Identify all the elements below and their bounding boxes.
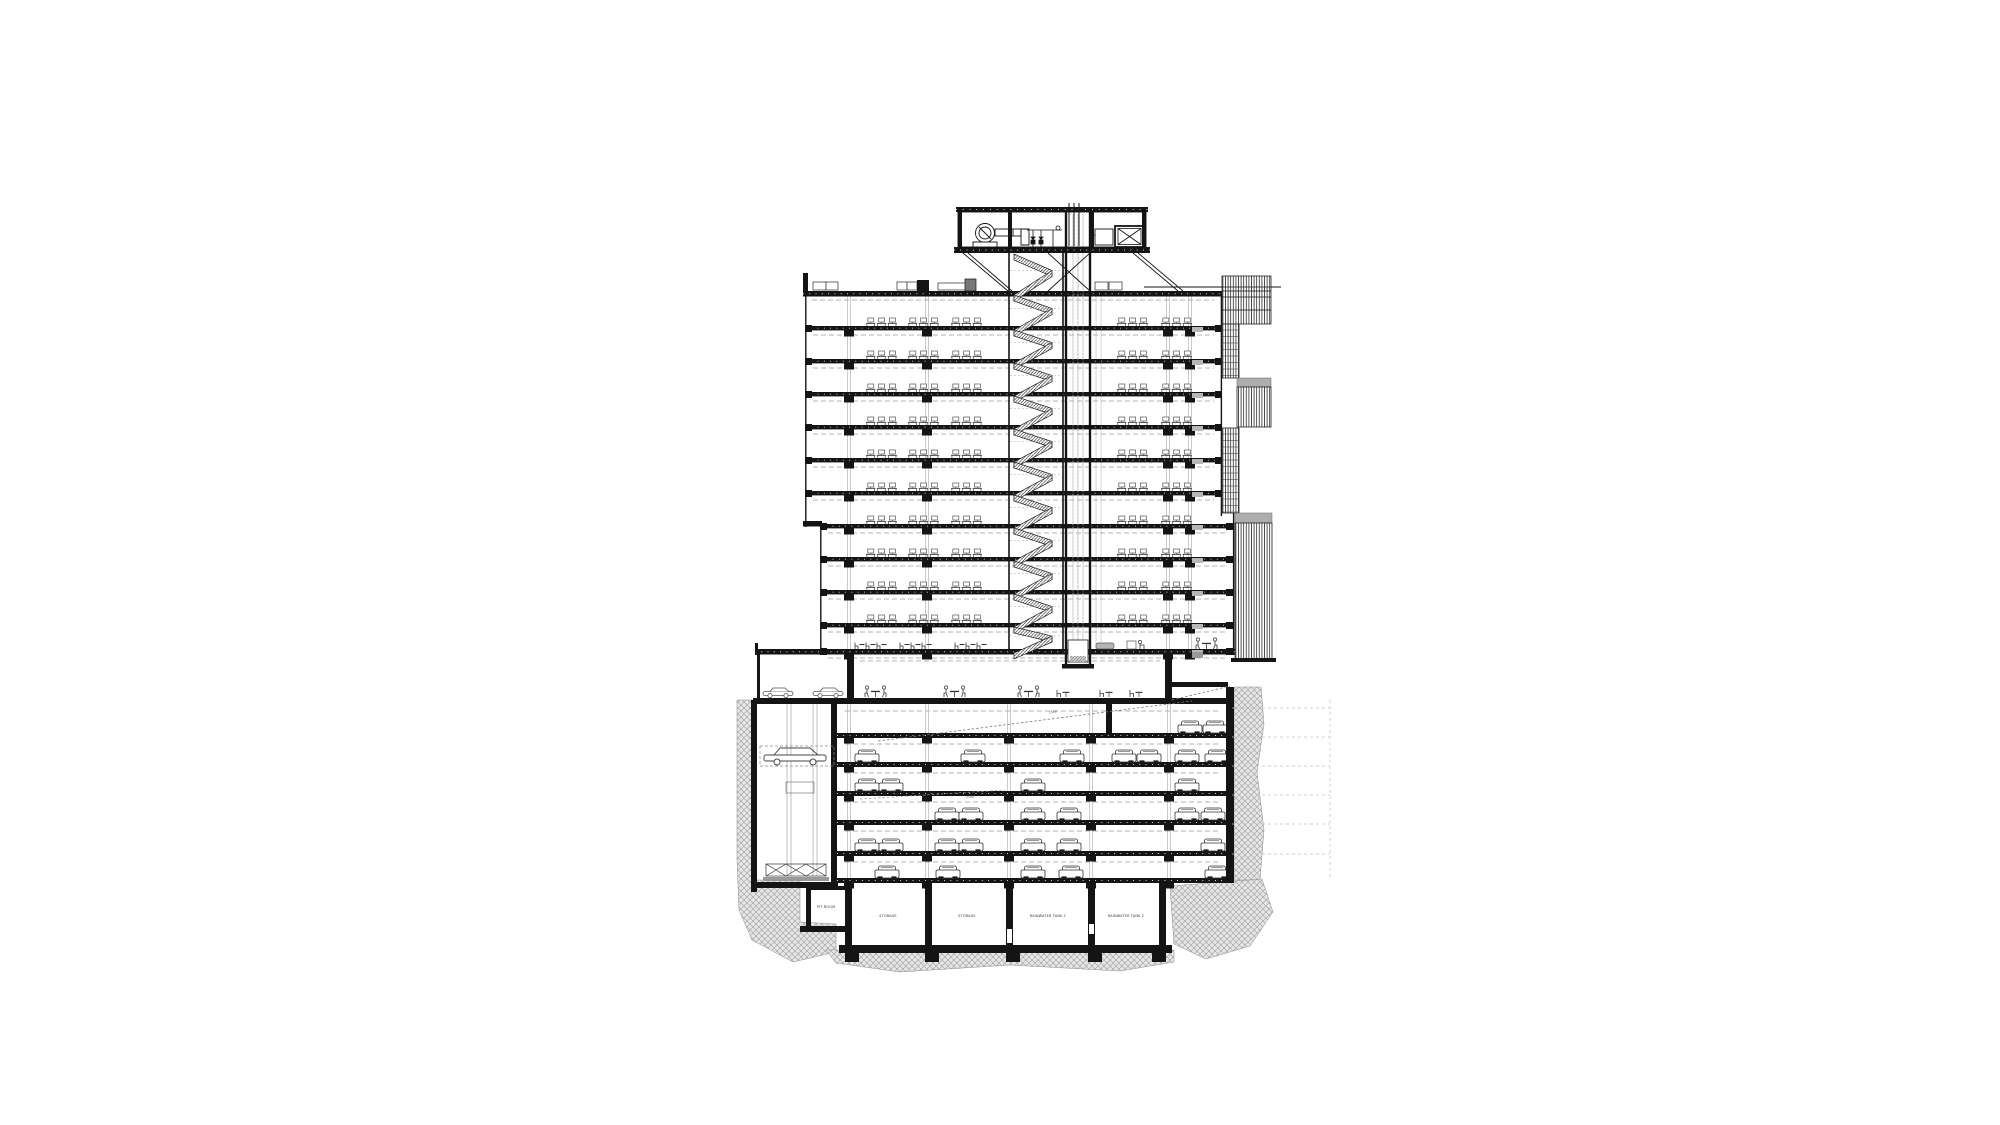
- street-ramp-line: [1172, 686, 1230, 700]
- desk-monitor-icon: [1130, 417, 1136, 421]
- desk-monitor-icon: [1130, 582, 1136, 586]
- shape: [960, 644, 965, 645]
- tank-wall: [1088, 883, 1095, 945]
- shape: [950, 691, 959, 692]
- desk-monitor-icon: [1140, 417, 1146, 421]
- desk-monitor-icon: [1119, 516, 1125, 520]
- spandrel-gray-panel: [1192, 591, 1203, 596]
- shape: [818, 694, 822, 698]
- tank-wall: [1159, 883, 1166, 945]
- desk-monitor-icon: [1184, 351, 1190, 355]
- chair-and-table-icon: [1100, 690, 1113, 697]
- shape: [1178, 789, 1183, 791]
- right-boundary-wall: [1226, 687, 1234, 883]
- facade-edge-block: [1226, 589, 1233, 596]
- desk-monitor-icon: [921, 384, 927, 388]
- rooftop-unit: [813, 282, 826, 290]
- shape: [866, 643, 869, 650]
- shape: [1181, 731, 1186, 733]
- column-head-block: [922, 653, 932, 660]
- plaza-slab: [753, 698, 1228, 704]
- street-ledge-right: [1172, 682, 1228, 687]
- parked-car-icon: [1201, 808, 1225, 820]
- column-head-block: [1163, 363, 1173, 370]
- desk-monitor-icon: [974, 615, 980, 619]
- desk-monitor-icon: [921, 582, 927, 586]
- desk-monitor-icon: [1140, 483, 1146, 487]
- desk-monitor-icon: [1184, 483, 1190, 487]
- column-head-block: [922, 855, 932, 862]
- tank-wall: [845, 883, 852, 945]
- desk-monitor-icon: [931, 582, 937, 586]
- desk-monitor-icon: [921, 318, 927, 322]
- shape: [1060, 849, 1065, 851]
- louver-strip-1: [1222, 324, 1239, 378]
- shape: [916, 644, 921, 645]
- desk-monitor-icon: [974, 351, 980, 355]
- column-head-block: [1163, 528, 1173, 535]
- column-head-block: [922, 824, 932, 831]
- parked-car-icon: [1203, 721, 1227, 733]
- shape: [944, 689, 948, 697]
- column-head-block: [1163, 396, 1173, 403]
- desk-monitor-icon: [879, 483, 885, 487]
- shape: [882, 686, 885, 689]
- desk-monitor-icon: [1119, 582, 1125, 586]
- desk-monitor-icon: [921, 615, 927, 619]
- shape: [971, 644, 976, 645]
- desk-monitor-icon: [1174, 384, 1180, 388]
- shape: [871, 644, 876, 645]
- desk-monitor-icon: [879, 549, 885, 553]
- shape: [1062, 876, 1067, 878]
- parked-car-icon: [935, 839, 959, 851]
- desk-monitor-icon: [974, 516, 980, 520]
- stair-flight: [1014, 254, 1052, 277]
- desk-monitor-icon: [1130, 483, 1136, 487]
- column-head-block: [844, 495, 854, 502]
- desk-monitor-icon: [889, 351, 895, 355]
- person-icon: [1138, 640, 1141, 643]
- desk-monitor-icon: [910, 615, 916, 619]
- column-head-block: [1163, 561, 1173, 568]
- rooftop-unit: [826, 282, 838, 290]
- shape: [1222, 760, 1227, 762]
- shape: [953, 876, 958, 878]
- parked-car-icon: [855, 750, 879, 762]
- parked-car-icon: [855, 839, 879, 851]
- facade-edge-block: [820, 556, 827, 563]
- desk-monitor-icon: [879, 516, 885, 520]
- parked-car-icon: [1021, 779, 1045, 791]
- shape: [977, 643, 980, 650]
- shape: [962, 849, 967, 851]
- desk-monitor-icon: [910, 549, 916, 553]
- parked-car-icon: [855, 779, 879, 791]
- desk-monitor-icon: [889, 516, 895, 520]
- shape: [1018, 689, 1022, 697]
- desk-monitor-icon: [889, 549, 895, 553]
- desk-monitor-icon: [964, 417, 970, 421]
- chair-and-table-icon: [1130, 690, 1143, 697]
- shape: [820, 688, 839, 692]
- desk-monitor-icon: [910, 318, 916, 322]
- parked-car-icon: [1205, 866, 1229, 878]
- plant-room-floor-slab: [954, 247, 1150, 253]
- facade-edge-block: [1215, 358, 1222, 365]
- ground-floor-furniture: [763, 686, 1143, 698]
- parked-car-icon: [1021, 808, 1045, 820]
- desk-monitor-icon: [1130, 351, 1136, 355]
- desk-monitor-icon: [931, 318, 937, 322]
- desk-monitor-icon: [1184, 450, 1190, 454]
- facade-edge-block: [1215, 391, 1222, 398]
- desk-monitor-icon: [1119, 351, 1125, 355]
- column-head-block: [844, 528, 854, 535]
- desk-monitor-icon: [953, 516, 959, 520]
- shape: [1018, 686, 1021, 689]
- left-retaining-wall: [751, 700, 757, 892]
- tank-door-gap: [1007, 929, 1012, 943]
- ramp-slope-annotation-2: 2500: [966, 795, 974, 800]
- stair-flight: [1014, 636, 1052, 659]
- column-head-block: [1086, 795, 1096, 802]
- desk-monitor-icon: [974, 549, 980, 553]
- desk-monitor-icon: [879, 351, 885, 355]
- shape: [1038, 789, 1043, 791]
- shape: [871, 691, 880, 692]
- column-head-block: [1004, 737, 1014, 744]
- person-at-table-icon: [865, 686, 886, 697]
- plant-post: [1008, 212, 1012, 247]
- parked-car-icon: [1205, 750, 1229, 762]
- shape: [1024, 789, 1029, 791]
- shape: [944, 686, 947, 689]
- column-head-block: [1163, 330, 1173, 337]
- facade-louver-screens: [1222, 276, 1276, 662]
- earth-hatch-bottom: [826, 950, 1174, 972]
- foundation-foot: [925, 953, 939, 962]
- facade-edge-block: [805, 358, 812, 365]
- shape: [1038, 876, 1043, 878]
- desk-monitor-icon: [1140, 516, 1146, 520]
- shape: [896, 849, 901, 851]
- column-head-block: [844, 737, 854, 744]
- shape: [1140, 760, 1145, 762]
- parked-car-icon: [1175, 750, 1199, 762]
- desk-monitor-icon: [868, 582, 874, 586]
- column-head-block: [1163, 462, 1173, 469]
- column-head-block: [1164, 855, 1174, 862]
- desk-monitor-icon: [974, 582, 980, 586]
- chair-and-table-icon: [1057, 690, 1070, 697]
- facade-edge-block: [805, 325, 812, 332]
- shape: [865, 689, 869, 697]
- shape: [813, 692, 843, 696]
- facade-edge-block: [1215, 457, 1222, 464]
- person-at-table-icon: [944, 686, 965, 697]
- desk-monitor-icon: [1140, 318, 1146, 322]
- foundation-foot: [845, 953, 859, 962]
- small-room-left-wall: [806, 886, 811, 928]
- shape: [938, 849, 943, 851]
- desk-monitor-icon: [1140, 384, 1146, 388]
- ahu-box: [1095, 229, 1113, 245]
- shape: [1063, 760, 1068, 762]
- parked-car-icon: [1021, 839, 1045, 851]
- basement-parking-levels: [837, 703, 1229, 889]
- desk-monitor-icon: [974, 417, 980, 421]
- desk-monitor-icon: [1163, 516, 1169, 520]
- shape: [962, 818, 967, 820]
- parked-car-icon: [959, 839, 983, 851]
- cross-braced-unit-icon: [1115, 226, 1144, 247]
- desk-monitor-icon: [953, 318, 959, 322]
- ground-left-wall: [847, 655, 854, 699]
- desk-monitor-icon: [1130, 318, 1136, 322]
- foundation-foot: [1006, 953, 1020, 962]
- shape: [927, 644, 932, 645]
- desk-monitor-icon: [868, 483, 874, 487]
- cafe-seating-icon: [855, 643, 887, 650]
- shape: [1074, 849, 1079, 851]
- parked-car-icon: [1059, 866, 1083, 878]
- desk-monitor-icon: [1119, 384, 1125, 388]
- shape: [952, 818, 957, 820]
- shape: [962, 689, 966, 697]
- desk-monitor-icon: [868, 549, 874, 553]
- room-label-2: STORAGE: [958, 914, 976, 918]
- louver-screen-lower-cap: [1235, 513, 1272, 523]
- desk-monitor-icon: [1174, 351, 1180, 355]
- shape: [1196, 638, 1199, 641]
- facade-edge-block: [805, 424, 812, 431]
- small-room-top-wall: [806, 886, 847, 890]
- desk-monitor-icon: [1140, 351, 1146, 355]
- shape: [1106, 692, 1113, 693]
- ramp-side-wall: [1106, 703, 1112, 734]
- desk-monitor-icon: [879, 582, 885, 586]
- desk-monitor-icon: [889, 384, 895, 388]
- column-head-block: [922, 561, 932, 568]
- column-head-block: [922, 429, 932, 436]
- desk-monitor-icon: [889, 450, 895, 454]
- desk-monitor-icon: [1163, 450, 1169, 454]
- desk-monitor-icon: [1163, 417, 1169, 421]
- spandrel-gray-panel: [1192, 360, 1203, 365]
- shape: [882, 789, 887, 791]
- column-head-block: [1004, 766, 1014, 773]
- shape: [1035, 686, 1038, 689]
- canopy-mast: [757, 654, 760, 699]
- building-section-drawing: PIT ROOM STORAGE STORAGE RAINWATER TANK …: [0, 0, 2000, 1125]
- facade-edge-block: [820, 523, 827, 530]
- lounge-couch-icon: [1096, 643, 1114, 649]
- desk-monitor-icon: [868, 384, 874, 388]
- desk-monitor-icon: [964, 450, 970, 454]
- desk-monitor-icon: [1174, 549, 1180, 553]
- desk-monitor-icon: [964, 516, 970, 520]
- desk-monitor-icon: [953, 450, 959, 454]
- desk-monitor-icon: [921, 417, 927, 421]
- tank-wall: [925, 883, 932, 945]
- canvas: PIT ROOM STORAGE STORAGE RAINWATER TANK …: [0, 0, 2000, 1125]
- desk-monitor-icon: [910, 483, 916, 487]
- column-head-block: [1164, 737, 1174, 744]
- desk-monitor-icon: [931, 549, 937, 553]
- desk-monitor-icon: [1140, 615, 1146, 619]
- desk-monitor-icon: [1130, 450, 1136, 454]
- shape: [1195, 731, 1200, 733]
- shape: [939, 876, 944, 878]
- desk-monitor-icon: [931, 417, 937, 421]
- column-head-block: [922, 528, 932, 535]
- column-head-block: [922, 495, 932, 502]
- parked-car-icon: [935, 808, 959, 820]
- shape: [1038, 818, 1043, 820]
- desk-monitor-icon: [953, 483, 959, 487]
- column-head-block: [1164, 824, 1174, 831]
- louver-screen-lower: [1235, 523, 1272, 659]
- desk-monitor-icon: [1163, 351, 1169, 355]
- shape: [892, 876, 897, 878]
- column-head-block: [1163, 627, 1173, 634]
- desk-monitor-icon: [1140, 582, 1146, 586]
- column-head-block: [1164, 795, 1174, 802]
- desk-monitor-icon: [1119, 417, 1125, 421]
- column-head-block: [922, 330, 932, 337]
- parked-car-icon: [1057, 808, 1081, 820]
- shape: [877, 643, 880, 650]
- shape: [1192, 789, 1197, 791]
- basement-left-wall: [831, 703, 837, 883]
- parked-car-icon: [1060, 750, 1084, 762]
- desk-monitor-icon: [1174, 450, 1180, 454]
- lift-machine-box: [786, 782, 814, 793]
- facade-edge-block: [820, 589, 827, 596]
- desk-monitor-icon: [974, 318, 980, 322]
- facade-edge-block: [1215, 490, 1222, 497]
- desk-monitor-icon: [931, 615, 937, 619]
- shape: [878, 876, 883, 878]
- desk-monitor-icon: [910, 384, 916, 388]
- parked-car-icon: [959, 808, 983, 820]
- room-label-3: RAINWATER TANK 1: [1030, 914, 1066, 918]
- shape: [1192, 818, 1197, 820]
- shape: [1057, 690, 1061, 697]
- shape: [964, 760, 969, 762]
- cafe-seating-icon: [900, 643, 932, 650]
- shape: [922, 643, 925, 650]
- column-head-block: [922, 795, 932, 802]
- lounge-box: [1127, 641, 1136, 649]
- desk-monitor-icon: [974, 384, 980, 388]
- pipe-rack-valves-icon: [1027, 226, 1062, 247]
- column-head-block: [844, 795, 854, 802]
- shape: [1220, 731, 1225, 733]
- cafe-seating-icon: [955, 643, 987, 650]
- street-car-icon: [813, 688, 843, 698]
- desk-monitor-icon: [1163, 483, 1169, 487]
- desk-monitor-icon: [1130, 549, 1136, 553]
- shape: [905, 644, 910, 645]
- desk-monitor-icon: [879, 318, 885, 322]
- rooftop-unit-dark: [917, 280, 929, 291]
- desk-monitor-icon: [931, 384, 937, 388]
- desk-monitor-icon: [868, 450, 874, 454]
- shape: [1130, 690, 1134, 697]
- desk-monitor-icon: [879, 384, 885, 388]
- shape: [1218, 849, 1223, 851]
- person-icon: [1140, 644, 1144, 649]
- desk-monitor-icon: [1184, 318, 1190, 322]
- column-head-block: [1086, 766, 1096, 773]
- shape: [1060, 818, 1065, 820]
- shape: [1192, 760, 1197, 762]
- shape: [955, 643, 958, 650]
- desk-monitor-icon: [1184, 615, 1190, 619]
- desk-monitor-icon: [931, 483, 937, 487]
- plant-post: [958, 212, 962, 247]
- parked-car-icon: [1175, 779, 1199, 791]
- spandrel-gray-panel: [1192, 459, 1203, 464]
- spandrel-gray-panel: [1192, 492, 1203, 497]
- shape: [858, 849, 863, 851]
- column-head-block: [1004, 824, 1014, 831]
- desk-monitor-icon: [1184, 384, 1190, 388]
- desk-monitor-icon: [889, 582, 895, 586]
- desk-monitor-icon: [868, 351, 874, 355]
- desk-monitor-icon: [1174, 318, 1180, 322]
- desk-monitor-icon: [921, 483, 927, 487]
- desk-monitor-icon: [931, 450, 937, 454]
- desk-monitor-icon: [1130, 384, 1136, 388]
- desk-monitor-icon: [1163, 318, 1169, 322]
- shape: [872, 849, 877, 851]
- column-head-block: [844, 396, 854, 403]
- shape: [1024, 691, 1033, 692]
- desk-monitor-icon: [921, 351, 927, 355]
- column-head-block: [844, 594, 854, 601]
- louver-base: [1231, 658, 1276, 662]
- facade-edge-block: [1215, 325, 1222, 332]
- desk-monitor-icon: [1163, 582, 1169, 586]
- column-head-block: [922, 627, 932, 634]
- shape: [1222, 876, 1227, 878]
- stair-and-elevator-core: [1009, 212, 1094, 669]
- desk-monitor-icon: [910, 582, 916, 586]
- column-head-block: [1164, 766, 1174, 773]
- desk-monitor-icon: [1184, 417, 1190, 421]
- facade-edge-block: [820, 622, 827, 629]
- shape: [768, 694, 772, 698]
- desk-monitor-icon: [868, 318, 874, 322]
- desk-monitor-icon: [931, 351, 937, 355]
- desk-monitor-icon: [868, 417, 874, 421]
- shape: [1038, 849, 1043, 851]
- shape: [860, 644, 865, 645]
- shape: [882, 644, 887, 645]
- desk-monitor-icon: [1174, 615, 1180, 619]
- shape: [882, 849, 887, 851]
- parked-car-icon: [1021, 866, 1045, 878]
- rooftop-unit: [897, 282, 907, 290]
- facade-edge-block: [820, 648, 827, 655]
- column-head-block: [844, 824, 854, 831]
- column-head-block: [1163, 495, 1173, 502]
- shape: [1196, 641, 1200, 649]
- foundation-foot: [1152, 953, 1166, 962]
